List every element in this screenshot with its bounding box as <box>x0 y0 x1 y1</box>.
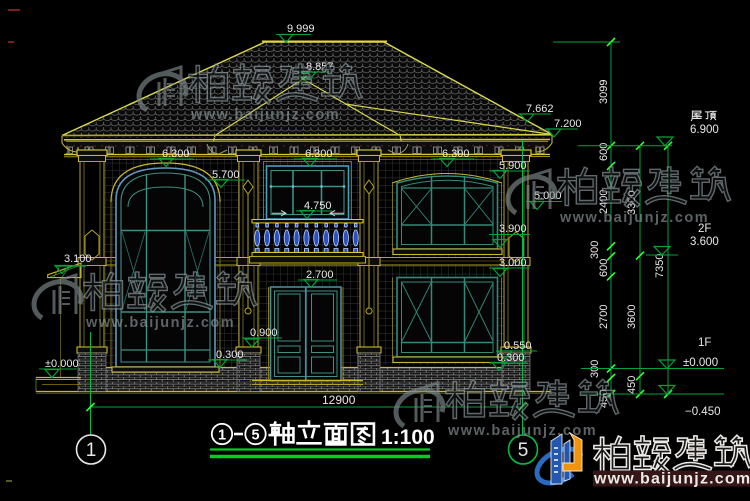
svg-text:5: 5 <box>251 428 259 444</box>
svg-text:3.100: 3.100 <box>64 253 92 265</box>
svg-text:7.662: 7.662 <box>526 103 554 115</box>
svg-text:3.900: 3.900 <box>499 223 527 235</box>
svg-text:±0.000: ±0.000 <box>45 358 79 370</box>
svg-text:2700: 2700 <box>598 305 610 329</box>
svg-text:3.000: 3.000 <box>499 257 527 269</box>
svg-text:600: 600 <box>598 259 610 277</box>
svg-text:www.baijunjz.com: www.baijunjz.com <box>559 210 709 226</box>
svg-text:1F: 1F <box>698 337 711 349</box>
svg-text:0.550: 0.550 <box>504 340 532 352</box>
svg-text:www.baijunjz.com: www.baijunjz.com <box>593 471 750 488</box>
svg-text:1: 1 <box>86 440 97 461</box>
svg-text:0.900: 0.900 <box>250 327 278 339</box>
svg-text:1:100: 1:100 <box>381 426 435 449</box>
svg-text:±0.000: ±0.000 <box>683 357 718 369</box>
svg-text:9.999: 9.999 <box>287 23 315 35</box>
svg-text:3099: 3099 <box>598 80 610 104</box>
svg-text:3.600: 3.600 <box>690 236 719 248</box>
svg-text:−0.450: −0.450 <box>685 406 721 418</box>
svg-text:www.baijunjz.com: www.baijunjz.com <box>85 315 235 331</box>
svg-text:7.200: 7.200 <box>554 118 582 130</box>
svg-text:450: 450 <box>626 376 638 394</box>
svg-text:3600: 3600 <box>626 305 638 329</box>
svg-text:www.baijunjz.com: www.baijunjz.com <box>190 107 340 123</box>
svg-text:5: 5 <box>518 440 529 461</box>
svg-text:300: 300 <box>589 241 601 259</box>
svg-text:1: 1 <box>218 428 226 444</box>
svg-text:7350: 7350 <box>654 254 666 278</box>
svg-text:6.900: 6.900 <box>690 124 719 136</box>
svg-text:12900: 12900 <box>322 393 356 407</box>
